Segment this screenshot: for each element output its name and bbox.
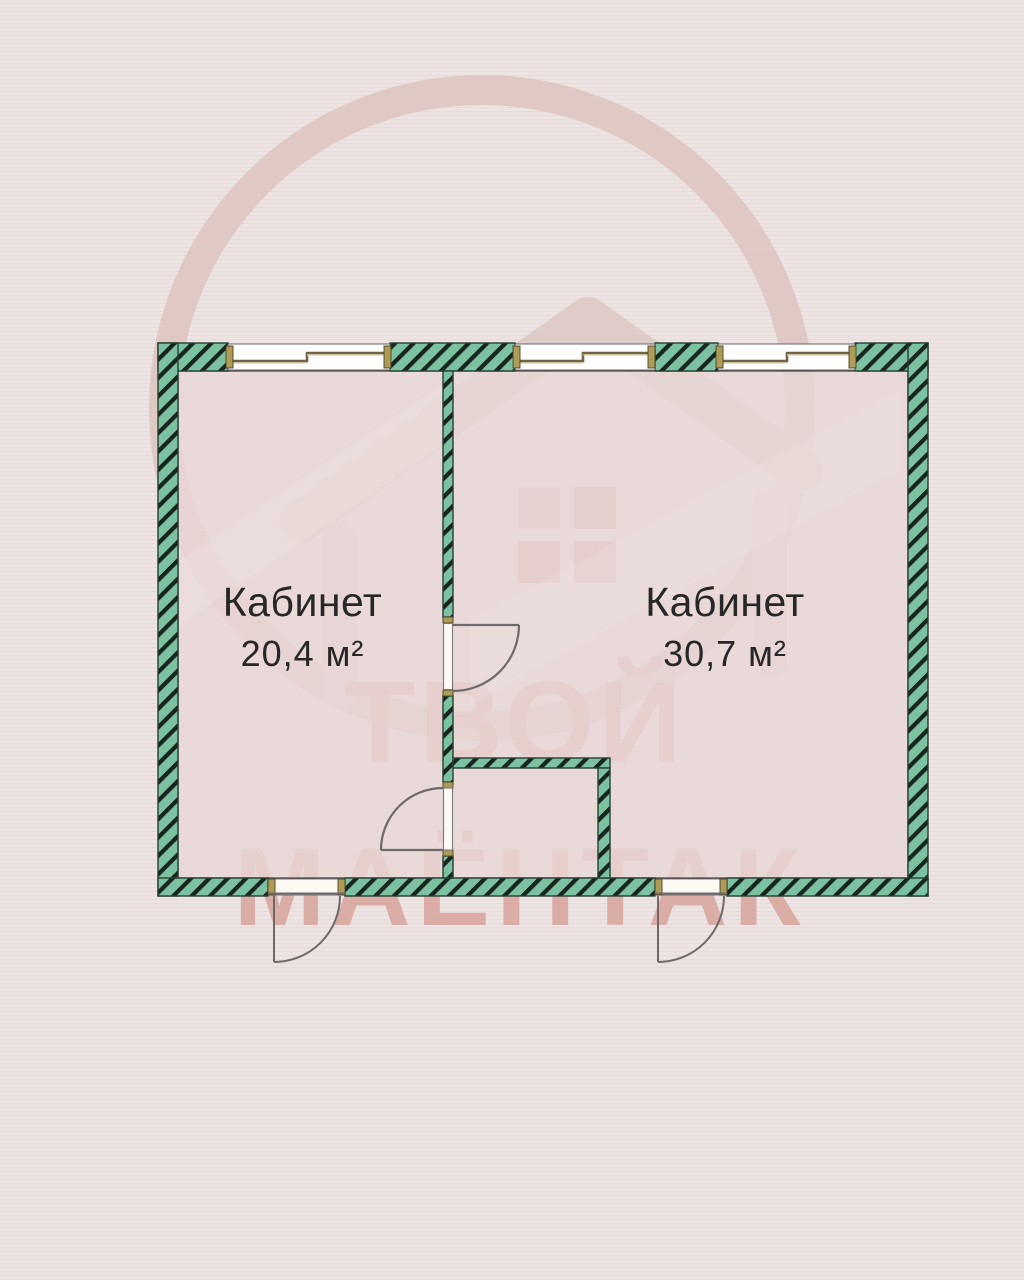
room-label-left: Кабинет 20,4 м²	[170, 581, 435, 675]
window-jamb	[226, 346, 233, 368]
page: ТВОЙ МАЁНТАК	[0, 0, 1024, 1280]
windows	[226, 344, 856, 370]
window	[228, 344, 390, 370]
door-jamb	[443, 782, 453, 788]
wall-bottom-segment	[158, 878, 268, 896]
window-jamb	[513, 346, 520, 368]
wall-partition	[443, 856, 453, 878]
door-swing	[274, 896, 340, 962]
door-swing	[658, 896, 724, 962]
wall-bottom-segment	[727, 878, 928, 896]
door-jamb	[443, 690, 453, 696]
room-name: Кабинет	[170, 581, 435, 624]
room-area: 20,4 м²	[170, 633, 435, 675]
wall-top-segment	[390, 343, 515, 371]
room-area: 30,7 м²	[540, 633, 910, 675]
room-name: Кабинет	[540, 581, 910, 624]
window-jamb	[648, 346, 655, 368]
room-label-right: Кабинет 30,7 м²	[540, 581, 910, 675]
wall-partition	[443, 696, 453, 782]
window-jamb	[716, 346, 723, 368]
window-jamb	[849, 346, 856, 368]
wall-right	[908, 343, 928, 896]
wall-closet-top	[453, 758, 610, 768]
window-jamb	[384, 346, 391, 368]
window	[515, 344, 655, 370]
wall-bottom-segment	[345, 878, 655, 896]
door-jamb	[443, 617, 453, 623]
door-jamb	[443, 850, 453, 856]
door-leaf	[444, 624, 453, 690]
wall-closet-right	[598, 768, 610, 878]
door-leaf	[444, 788, 453, 850]
wall-top-segment	[655, 343, 718, 371]
wall-partition	[443, 371, 453, 617]
